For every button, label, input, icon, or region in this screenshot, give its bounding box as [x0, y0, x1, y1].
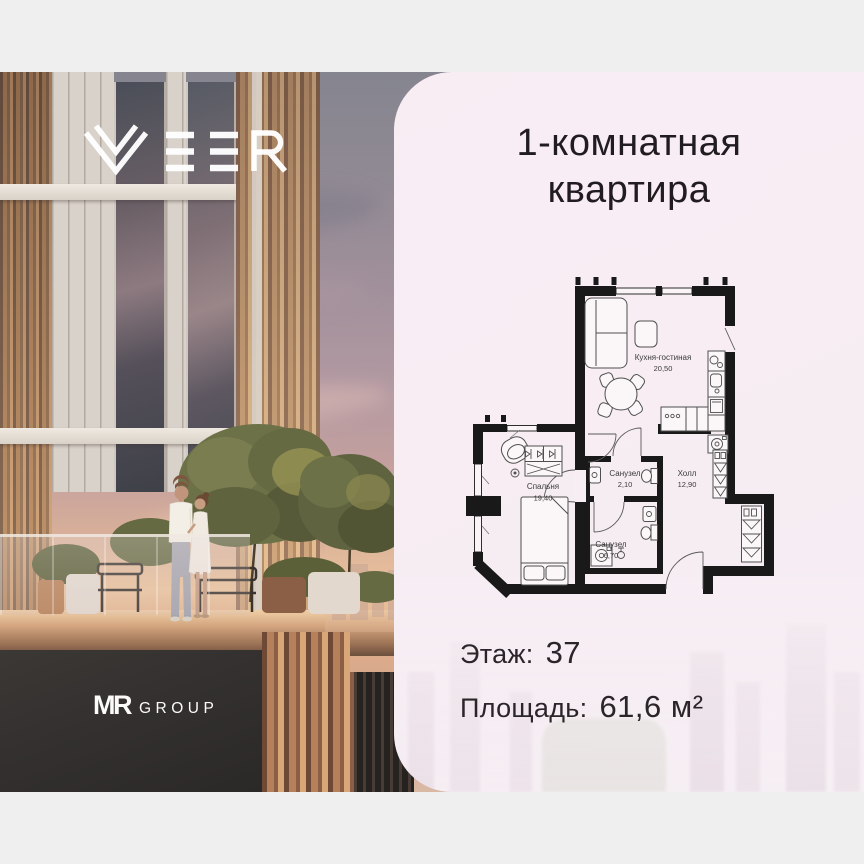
veer-r	[254, 133, 285, 171]
glass-railing	[0, 534, 250, 615]
room-area-kitchen-living: 20,50	[654, 364, 673, 373]
area-value: 61,6 м²	[599, 689, 703, 725]
area-label: Площадь:	[460, 693, 587, 724]
bathroom2-fixtures	[591, 507, 658, 567]
bedroom-furniture	[498, 433, 568, 585]
floor-value: 37	[546, 635, 581, 671]
room-label-bedroom: Спальня	[527, 482, 559, 491]
room-label-hall: Холл	[678, 469, 697, 478]
veer-e2	[210, 135, 238, 168]
mr-group-logo: MR GROUP	[93, 690, 263, 722]
room-area-bathroom1: 2,10	[618, 480, 633, 489]
apartment-specs: Этаж: 37 Площадь: 61,6 м²	[460, 635, 704, 743]
plan-doors	[544, 328, 735, 589]
veer-e1	[166, 135, 194, 168]
sofa	[585, 298, 627, 368]
apartment-info-card: 1-комнатная квартира	[394, 72, 864, 792]
mr-logo-text: MR	[93, 690, 132, 720]
veer-chevron-accent	[96, 126, 136, 152]
kitchen-counter	[661, 351, 725, 431]
floor-plan: Кухня-гостиная 20,50 Спальня 19,40 Сануз…	[458, 264, 788, 619]
bottom-margin-band	[0, 792, 864, 864]
coffee-table	[635, 321, 657, 347]
diagonal-wall	[478, 564, 510, 594]
top-margin-band	[0, 0, 864, 72]
veer-logo	[82, 118, 302, 180]
apartment-title-line1: 1-комнатная	[394, 120, 864, 167]
apartment-title-line2: квартира	[394, 167, 864, 214]
entry-wardrobe	[742, 506, 762, 562]
group-logo-text: GROUP	[139, 700, 218, 717]
room-area-bedroom: 19,40	[534, 494, 553, 503]
apartment-title: 1-комнатная квартира	[394, 120, 864, 214]
floor-label: Этаж:	[460, 639, 534, 670]
room-area-bathroom2: 6,70	[604, 551, 619, 560]
dining-table	[597, 372, 646, 419]
room-label-kitchen-living: Кухня-гостиная	[635, 353, 692, 362]
room-label-bathroom1: Санузел	[609, 469, 640, 478]
room-area-hall: 12,90	[678, 480, 697, 489]
bedroom-door-opening	[574, 470, 586, 502]
listing-image: MR GROUP 1-комнатная квартира	[0, 0, 864, 864]
floor-spec: Этаж: 37	[460, 635, 704, 689]
area-spec: Площадь: 61,6 м²	[460, 689, 704, 743]
room-label-bathroom2: Санузел	[595, 540, 626, 549]
hall-wardrobe	[713, 450, 727, 498]
